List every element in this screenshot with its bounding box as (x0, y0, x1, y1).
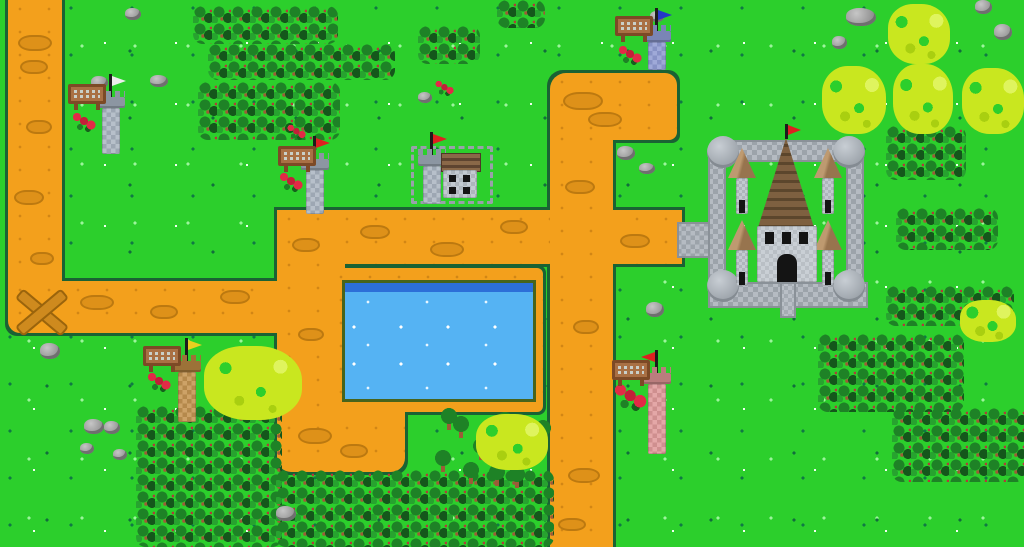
path-dirt-blotch (14, 190, 44, 205)
path-dirt-blotch (292, 238, 320, 252)
fort-house-window (449, 175, 456, 182)
castle-turret (814, 220, 842, 286)
path-dirt-blotch (430, 242, 464, 257)
castle-keep-door (777, 254, 797, 282)
path-dirt-blotch (340, 444, 368, 458)
fort-house-window (463, 187, 470, 194)
rock (617, 146, 635, 160)
forest-patch (896, 208, 998, 250)
rock (646, 302, 664, 317)
castle-turret (728, 148, 756, 214)
castle-turret-slit (825, 272, 831, 285)
path-dirt-blotch (573, 320, 599, 334)
castle[interactable] (700, 124, 872, 320)
turret-body (178, 372, 196, 422)
turret-body (423, 166, 441, 204)
turret-flag (658, 10, 672, 20)
path-dirt-blotch (150, 305, 178, 319)
path-dirt-blotch (26, 120, 52, 134)
rock (125, 8, 141, 20)
game-map (0, 0, 1024, 547)
sign-board (143, 346, 181, 366)
forest-patch (198, 82, 340, 140)
castle-turret-roof (814, 220, 842, 250)
turret-flag (433, 134, 447, 144)
castle-keep-window (765, 232, 774, 244)
castle-turret-slit (739, 200, 745, 213)
fort-house-window (463, 175, 470, 182)
castle-turret-roof (728, 148, 756, 178)
flower (71, 112, 97, 132)
tree (440, 408, 458, 430)
sign-leg (149, 366, 153, 372)
turret-flag (112, 76, 126, 86)
rock (418, 92, 432, 103)
forest-patch (208, 44, 395, 80)
pond-water (345, 283, 533, 399)
bush (204, 346, 302, 420)
path-dirt-blotch (360, 225, 390, 239)
castle-turret-roof (728, 220, 756, 250)
castle-turret (728, 220, 756, 286)
fort-house[interactable] (441, 153, 479, 198)
path-dirt-blotch (298, 428, 332, 444)
sign-board (278, 146, 316, 166)
bush (962, 68, 1024, 134)
sign-board (68, 84, 106, 104)
turret-flag (188, 340, 202, 350)
sign-leg (618, 380, 622, 386)
sign-board (612, 360, 650, 380)
sign-south[interactable] (612, 360, 650, 386)
turret-body (648, 384, 666, 454)
castle-turret-slit (825, 200, 831, 213)
bush (960, 300, 1016, 342)
forest-patch (418, 26, 480, 64)
flower (434, 80, 455, 96)
sign-leg (171, 366, 175, 372)
castle-keep-window (799, 232, 808, 244)
sign-nw[interactable] (68, 84, 106, 110)
sign-board (615, 16, 653, 36)
turret-flag (316, 138, 330, 148)
rock (994, 24, 1012, 40)
castle-turret-roof (814, 148, 842, 178)
path-dirt-blotch (588, 112, 622, 127)
path-dirt-blotch (220, 290, 250, 304)
tree (434, 450, 452, 472)
path-dirt-blotch (568, 468, 600, 483)
fort-house-window (449, 187, 456, 194)
castle-turret (814, 148, 842, 214)
rock (832, 36, 847, 49)
rock (639, 163, 655, 174)
rock (84, 419, 104, 434)
sign-top[interactable] (615, 16, 653, 42)
sign-leg (74, 104, 78, 110)
forest-patch (497, 0, 545, 28)
forest-patch (818, 334, 964, 412)
rock (975, 0, 992, 14)
flower (617, 45, 643, 65)
sign-leg (306, 166, 310, 172)
castle-turret-slit (739, 272, 745, 285)
tree (462, 462, 480, 484)
path-dirt-blotch (30, 252, 54, 265)
forest-patch (886, 126, 966, 180)
path-dirt-blotch (18, 35, 52, 51)
path-dirt-blotch (558, 518, 586, 531)
path-dirt-blotch (298, 328, 324, 341)
bush (476, 414, 548, 470)
castle-door-path (780, 282, 796, 318)
rock (40, 343, 60, 359)
rock (113, 449, 127, 460)
castle-flag (788, 125, 801, 135)
path-dirt-blotch (565, 180, 595, 194)
sign-leg (96, 104, 100, 110)
path-dirt-blotch (20, 60, 48, 74)
rock (846, 8, 876, 26)
sign-leg (643, 36, 647, 42)
path-dirt-blotch (500, 220, 528, 234)
forest-patch (892, 408, 1024, 482)
sign-sw[interactable] (143, 346, 181, 372)
rock (104, 421, 120, 434)
sign-leg (284, 166, 288, 172)
forest-patch (136, 406, 282, 547)
sign-mid[interactable] (278, 146, 316, 172)
castle-keep-window (782, 232, 791, 244)
turret-body (306, 170, 324, 214)
bush (888, 4, 950, 64)
rock (276, 506, 296, 521)
turret-body (102, 108, 120, 154)
path-dirt-blotch (80, 295, 114, 310)
turret-body (648, 42, 666, 70)
rock (80, 443, 94, 454)
sign-leg (621, 36, 625, 42)
rock (150, 75, 168, 87)
forest-patch (193, 6, 338, 44)
bush (893, 64, 953, 134)
sign-leg (640, 380, 644, 386)
path-dirt-blotch (620, 234, 650, 248)
path-dirt-blotch (563, 92, 603, 110)
flower (146, 372, 172, 392)
